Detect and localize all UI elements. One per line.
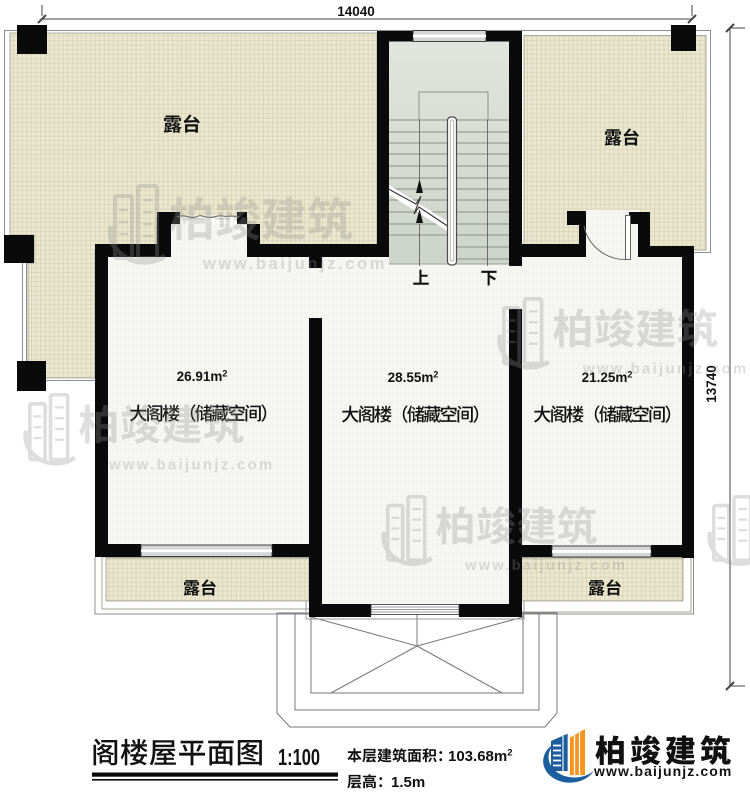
svg-text:14040: 14040 xyxy=(337,4,375,19)
svg-text:28.55m2: 28.55m2 xyxy=(388,370,439,386)
svg-text:www.baijunjz.com: www.baijunjz.com xyxy=(593,763,732,779)
svg-text:103.68m2: 103.68m2 xyxy=(448,748,513,766)
svg-text:1.5m: 1.5m xyxy=(391,774,425,791)
svg-text:26.91m2: 26.91m2 xyxy=(177,369,228,385)
svg-text:1:100: 1:100 xyxy=(278,744,320,770)
